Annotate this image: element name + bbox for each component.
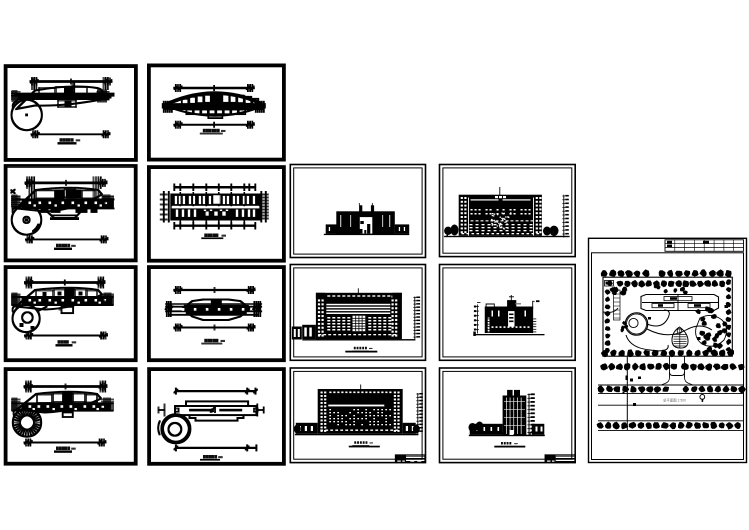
svg-text:总平面图 1:500: 总平面图 1:500 [663, 398, 686, 403]
